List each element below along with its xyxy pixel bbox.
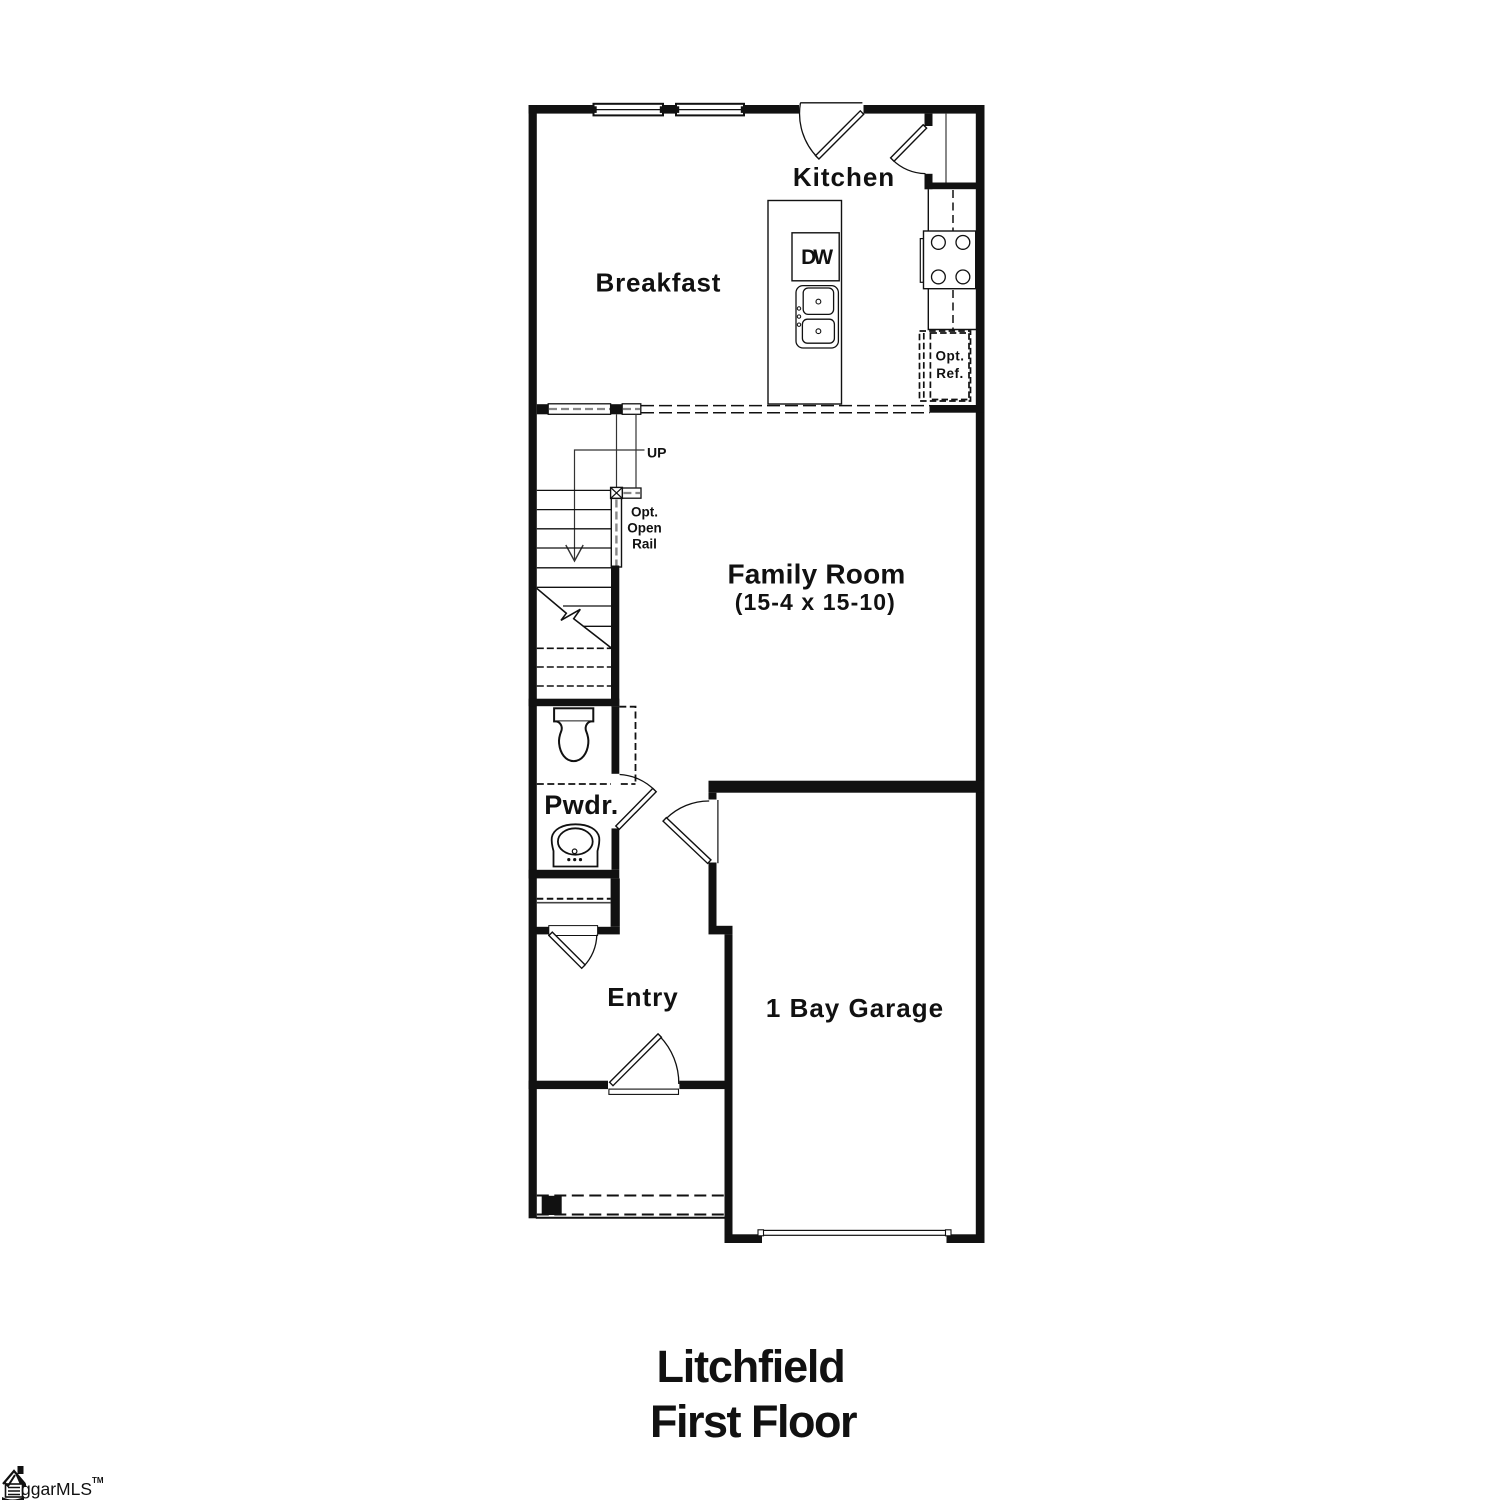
svg-text:Opt.: Opt. [631,505,658,520]
svg-text:Breakfast: Breakfast [596,268,722,298]
svg-text:Rail: Rail [632,537,657,552]
svg-text:Open: Open [627,521,662,536]
svg-text:Kitchen: Kitchen [793,162,895,192]
svg-text:DW: DW [801,246,833,269]
svg-text:Family Room: Family Room [727,559,905,590]
svg-text:Ref.: Ref. [936,366,964,381]
svg-text:1 Bay Garage: 1 Bay Garage [766,993,944,1023]
svg-text:Litchfield: Litchfield [657,1341,845,1392]
svg-text:TM: TM [92,1476,104,1485]
svg-text:Opt.: Opt. [936,349,965,364]
svg-text:Entry: Entry [607,982,678,1012]
svg-text:(15-4 x 15-10): (15-4 x 15-10) [735,589,896,615]
svg-text:Pwdr.: Pwdr. [544,790,619,820]
svg-text:ggarMLS: ggarMLS [21,1479,92,1499]
svg-text:First Floor: First Floor [650,1396,857,1447]
svg-text:UP: UP [647,445,666,461]
